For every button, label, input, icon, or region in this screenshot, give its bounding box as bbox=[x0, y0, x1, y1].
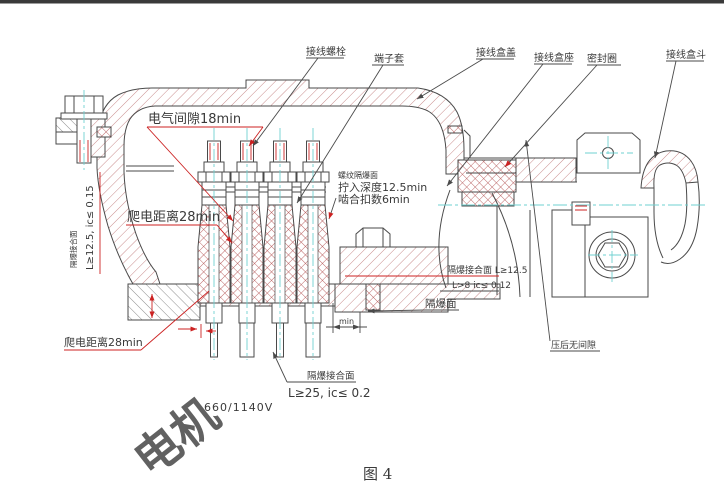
terminal-stud-4 bbox=[297, 128, 329, 360]
label-min-dim: min bbox=[339, 317, 354, 326]
internal-boss bbox=[340, 247, 448, 284]
label-seal-ring: 密封圈 bbox=[587, 52, 617, 65]
label-thread-depth: 拧入深度12.5min bbox=[338, 180, 427, 194]
label-box-cover: 接线盒盖 bbox=[476, 46, 516, 59]
label-left-joint-title: 隔爆接合面 bbox=[68, 230, 78, 268]
label-creepage-upper: 爬电距离28min bbox=[127, 209, 220, 225]
label-creepage-lower: 爬电距离28min bbox=[64, 335, 143, 349]
label-box-hopper: 接线盒斗 bbox=[666, 48, 706, 61]
cad-drawing-page: 电机 bbox=[0, 0, 724, 487]
terminal-stud-2 bbox=[231, 128, 263, 360]
label-no-gap: 压后无间隙 bbox=[551, 339, 596, 351]
label-terminal-sleeve: 端子套 bbox=[374, 52, 404, 65]
terminal-stud-3 bbox=[264, 128, 296, 360]
box-hopper-section bbox=[641, 151, 699, 264]
seal-chip bbox=[97, 127, 111, 137]
label-electrical-clearance: 电气间隙18min bbox=[148, 111, 241, 127]
terminal-stud-1 bbox=[198, 128, 230, 360]
label-bottom-joint-title: 隔爆接合面 bbox=[307, 370, 355, 382]
window-top-border bbox=[0, 0, 724, 4]
label-flameproof-face: 隔爆面 bbox=[425, 297, 457, 310]
terminal-box-section-drawing: 电机 bbox=[0, 0, 724, 487]
label-bottom-joint-spec: L≥25, ic≤ 0.2 bbox=[288, 386, 371, 400]
label-left-joint-spec: L≥12.5, ic≤ 0.15 bbox=[85, 185, 96, 270]
label-thread-engagement: 啮合扣数6min bbox=[338, 192, 410, 206]
label-terminal-bolt: 接线螺栓 bbox=[306, 45, 346, 58]
label-thread-flameproof: 螺纹隔爆面 bbox=[338, 170, 378, 180]
gland-bracket-section bbox=[497, 202, 648, 297]
base-plate-left bbox=[128, 284, 200, 320]
label-seat-joint-spec1: 隔爆接合面 L≥12.5 bbox=[447, 264, 527, 276]
voltage-label: 660/1140V bbox=[204, 401, 273, 414]
figure-caption: 图 4 bbox=[363, 465, 392, 483]
label-box-seat: 接线盒座 bbox=[534, 51, 574, 64]
internal-hex-bolt bbox=[353, 228, 393, 247]
label-seat-joint-spec2: L>8 ic≤ 0.12 bbox=[452, 281, 511, 291]
